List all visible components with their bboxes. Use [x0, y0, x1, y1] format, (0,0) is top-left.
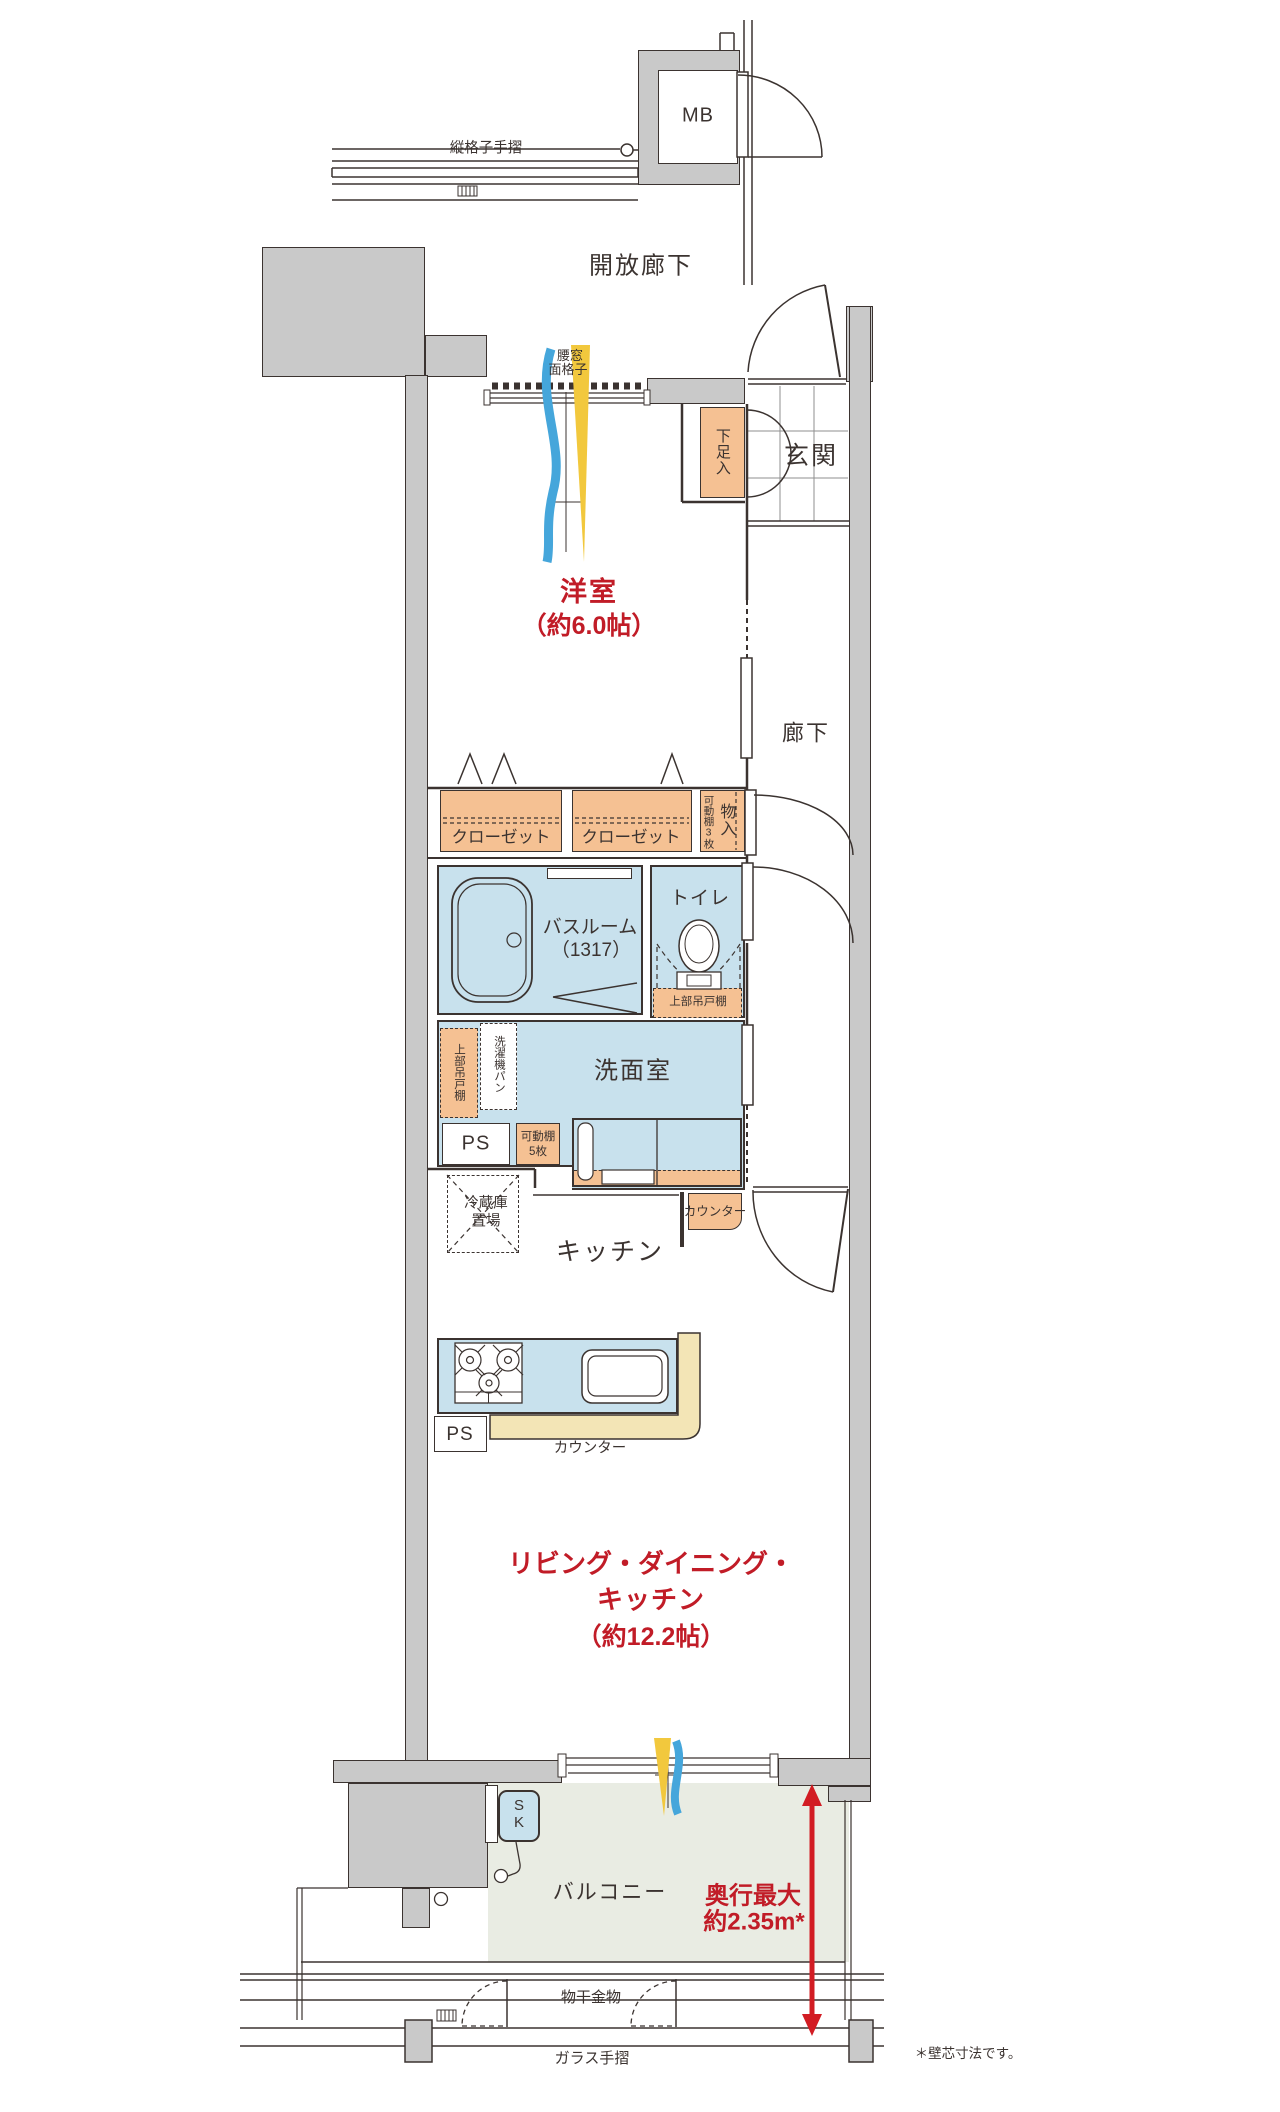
- storage-shelf-label: 可動棚3枚: [702, 795, 713, 849]
- meter-box-label: MB: [682, 106, 714, 127]
- ldk-label-1: リビング・ダイニング・: [508, 1550, 794, 1577]
- ps-upper-label: PS: [462, 1134, 491, 1155]
- toilet-cabinet-label: 上部吊戸棚: [669, 996, 727, 1008]
- closet-left-label: クローゼット: [452, 829, 551, 846]
- entrance-door: [748, 285, 846, 384]
- ps-lower-label: PS: [446, 1425, 473, 1445]
- fridge-label-1: 冷蔵庫: [464, 1196, 508, 1211]
- movable-shelf5-box: [516, 1123, 560, 1165]
- wall-left: [405, 375, 428, 1765]
- window-note-2: 面格子: [548, 363, 587, 377]
- ldk-label-3: （約12.2帖）: [577, 1624, 726, 1650]
- closet-right-label: クローゼット: [582, 829, 681, 846]
- shelf5-label-2: 5枚: [529, 1146, 547, 1158]
- vanity-cabinet-band: [574, 1170, 740, 1185]
- western-room-label: 洋室: [560, 578, 618, 606]
- entrance-label: 玄関: [784, 443, 838, 469]
- sk-label-1: S: [514, 1798, 524, 1814]
- washroom-cabinet-label: 上部吊戸棚: [453, 1043, 465, 1101]
- genkan-step: [747, 521, 849, 526]
- wall-balcony-block: [348, 1783, 488, 1888]
- bathroom-label: バスルーム: [543, 918, 637, 938]
- balcony-label: バルコニー: [553, 1882, 668, 1904]
- laundry-label: 物干金物: [561, 1990, 621, 2006]
- handrail-label: 縦格子手摺: [450, 141, 523, 156]
- ldk-label-2: キッチン: [597, 1586, 705, 1613]
- wall-top-left-block: [262, 247, 425, 377]
- hallway-label: 廊下: [782, 721, 830, 744]
- wall-balcony-band: [333, 1760, 562, 1783]
- window-note-1: 腰窓: [557, 349, 583, 363]
- airflow-top: [546, 345, 590, 562]
- wall-window-sill: [425, 335, 487, 377]
- kitchen-counter-label: カウンター: [554, 1441, 627, 1456]
- depth-label-2: 約2.35m*: [703, 1909, 804, 1934]
- sk-label-2: K: [514, 1815, 524, 1831]
- pass-counter-label: カウンター: [684, 1205, 747, 1218]
- western-room-size: （約6.0帖）: [522, 613, 657, 639]
- bathroom-size: （1317）: [551, 941, 631, 961]
- shoe-cabinet-label: 下足入: [714, 428, 730, 476]
- wall-balcony-column: [402, 1888, 430, 1928]
- wall-balcony-corner-step: [828, 1786, 871, 1802]
- bottom-railing: [240, 1962, 884, 2062]
- footnote: ＊壁芯寸法です。: [915, 2047, 1022, 2061]
- glass-rail-label: ガラス手摺: [555, 2051, 630, 2067]
- open-corridor-label: 開放廊下: [589, 253, 693, 278]
- upper-window: [484, 386, 650, 552]
- wall-right: [849, 306, 871, 1786]
- wall-balcony-corner-right: [778, 1758, 871, 1786]
- kitchen-unit: [437, 1338, 678, 1414]
- storage-label: 物入: [717, 803, 734, 837]
- sk-shelf: [485, 1785, 498, 1843]
- shelf5-label-1: 可動棚: [521, 1131, 556, 1143]
- toilet-label: トイレ: [670, 889, 730, 909]
- ldk-door: [753, 1187, 848, 1292]
- kitchen-label: キッチン: [556, 1239, 664, 1265]
- wall-top-right: [647, 378, 745, 404]
- floor-plan: 縦格子手摺 MB 開放廊下 腰窓 面格子 玄関 下足入 洋室 （約6.0帖） 廊…: [0, 0, 1280, 2112]
- fridge-label-2: 置場: [472, 1214, 501, 1229]
- bifold-symbols: [458, 754, 683, 784]
- washroom-label: 洗面室: [594, 1058, 672, 1083]
- washer-pan-label: 洗濯機パン: [493, 1035, 505, 1093]
- bath-shelf: [547, 868, 632, 879]
- depth-label-1: 奥行最大: [705, 1883, 801, 1908]
